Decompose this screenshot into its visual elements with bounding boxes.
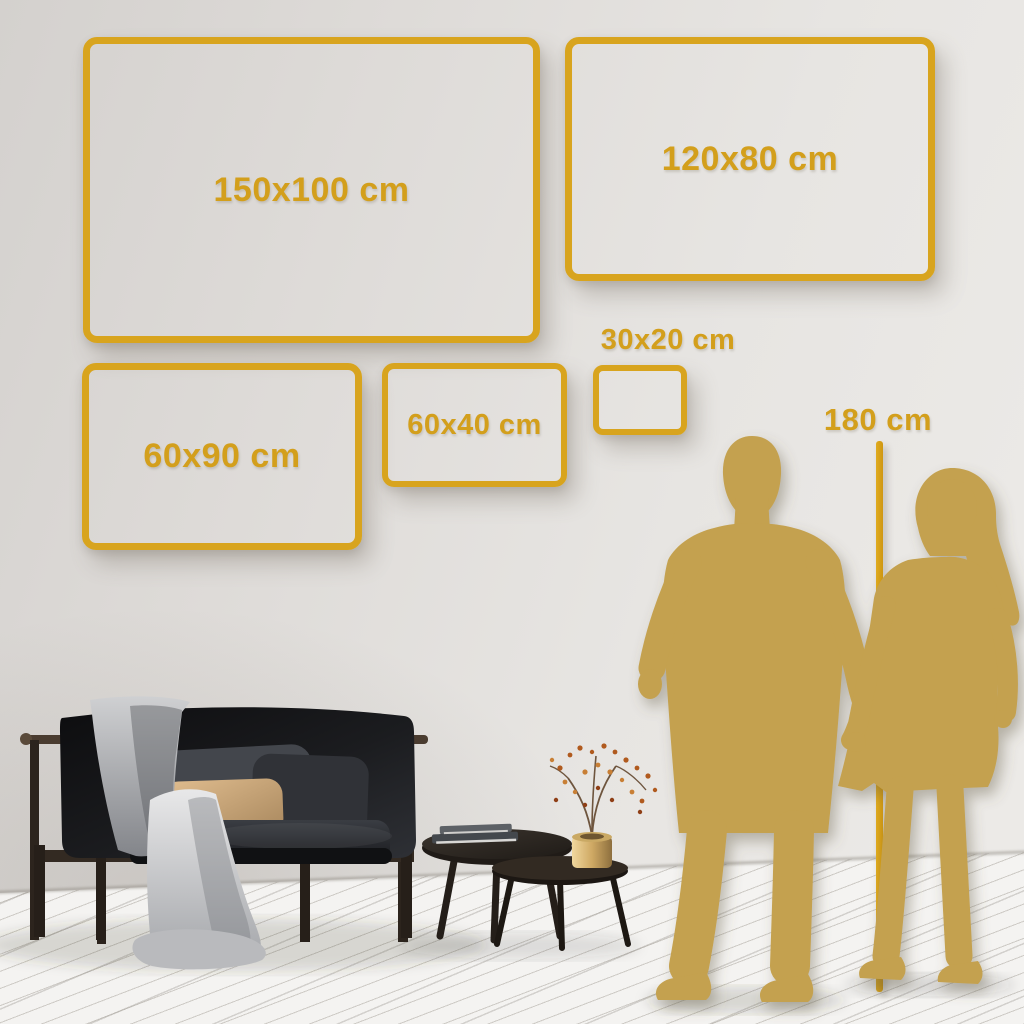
- size-guide-stage: 150x100 cm 120x80 cm 60x90 cm 60x40 cm 3…: [0, 0, 1024, 1024]
- height-reference-label: 180 cm: [818, 402, 938, 438]
- size-frame-label-30x20: 30x20 cm: [588, 324, 748, 357]
- size-frame-label: 150x100 cm: [214, 171, 410, 210]
- size-frame-label: 60x40 cm: [407, 409, 542, 442]
- size-frame-120x80: 120x80 cm: [565, 37, 935, 281]
- size-frame-label: 60x90 cm: [143, 437, 300, 476]
- size-frame-150x100: 150x100 cm: [83, 37, 540, 343]
- height-ruler-line: [876, 441, 883, 992]
- size-frame-label: 120x80 cm: [662, 140, 839, 179]
- size-frame-60x90: 60x90 cm: [82, 363, 362, 550]
- size-frame-30x20: [593, 365, 687, 435]
- size-frame-60x40: 60x40 cm: [382, 363, 567, 487]
